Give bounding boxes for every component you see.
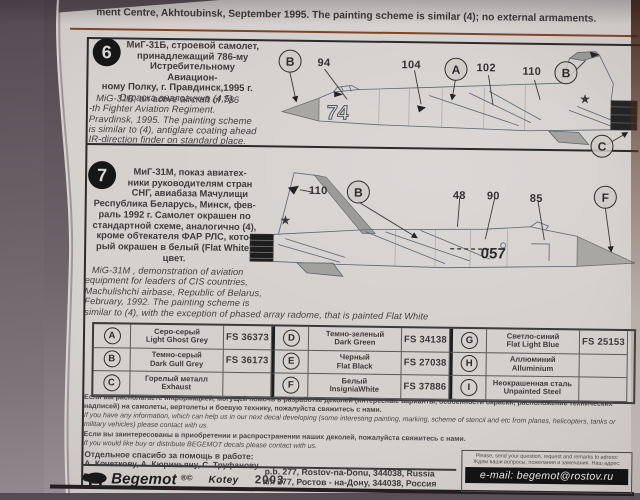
thin-brown-rule — [70, 28, 638, 37]
table-cell-fs — [579, 354, 627, 378]
table-cell-name: ЧерныйFlat Black — [309, 350, 402, 375]
footer-brand-name: Begemot — [111, 470, 177, 488]
table-cell-fs — [579, 377, 627, 401]
trademark-copyright-marks: ®© — [181, 473, 193, 482]
contact-note-ru: Ждем ваши вопросы, пожелания и замечания… — [465, 459, 628, 467]
mig31m-profile-drawing: 057 ★ — [244, 166, 638, 306]
table-cell-letter: G — [450, 329, 487, 353]
table-cell-name: Неокрашенная стальUnpainted Steel — [486, 376, 579, 401]
table-cell-letter: F — [271, 373, 308, 397]
table-cell-letter: B — [94, 348, 131, 372]
table-cell-letter: H — [450, 352, 487, 376]
callout-circle-a: A — [444, 58, 467, 81]
table-cell-fs: FS 27038 — [402, 352, 450, 376]
callout-label-110: 110 — [309, 185, 328, 197]
callout-label-94: 94 — [318, 57, 331, 69]
table-cell-name: Серо-серыйLight Ghost Grey — [131, 325, 224, 350]
table-cell-name: Темно-зеленыйDark Green — [309, 327, 402, 352]
section-6-text-en: MiG-31B, an active aircraft of 786 -th F… — [89, 93, 295, 147]
callout-label-48: 48 — [453, 190, 466, 202]
callout-label-104: 104 — [401, 59, 420, 71]
table-cell-fs: FS 36173 — [224, 349, 272, 373]
table-cell-name: Темно-серыйDark Gull Grey — [131, 348, 224, 373]
board-number-74: 74 — [325, 102, 350, 124]
table-cell-fs: FS 36373 — [224, 326, 272, 350]
table-cell-name: Светло-синийFlat Light Blue — [487, 329, 580, 354]
callout-label-85: 85 — [530, 193, 543, 205]
table-cell-letter: E — [272, 350, 309, 374]
footer-kotey-signature: Kotey — [208, 474, 238, 485]
callout-label-90: 90 — [487, 190, 500, 202]
table-cell-letter: A — [94, 324, 131, 348]
begemot-hippo-logo-icon — [82, 470, 108, 486]
email-bar: e-mail: begemot@rostov.ru — [465, 467, 628, 485]
sheet-content: ment Centre, Akhtoubinsk, September 1995… — [0, 0, 640, 500]
table-cell-letter: D — [272, 326, 309, 350]
tail-star-icon: ★ — [279, 212, 291, 227]
table-cell-fs: FS 25153 — [580, 330, 628, 354]
table-cell-name: Горелый металлExhaust — [130, 372, 223, 397]
table-cell-fs: FS 37886 — [401, 375, 449, 399]
table-cell-letter: C — [93, 371, 130, 395]
table-cell-letter: I — [449, 376, 486, 400]
footer-contact-box: Please, send your question, request and … — [461, 450, 633, 494]
color-table: A Серо-серыйLight Ghost Grey FS 36373 D … — [91, 322, 636, 404]
photographed-instruction-sheet: { "top_caption": "ment Centre, Akhtoubin… — [0, 0, 640, 493]
table-cell-name: АллюминийAlluminium — [487, 353, 580, 378]
table-cell-name: БелыйInsigniaWhite — [308, 374, 401, 399]
callout-label-110: 110 — [522, 66, 541, 78]
board-number-057: 057 — [480, 245, 506, 262]
tail-star-icon: ★ — [579, 91, 591, 106]
photo-right-edge-shadow — [631, 0, 640, 493]
table-cell-fs — [223, 373, 271, 397]
callout-circle-b-left: B — [278, 49, 301, 72]
callout-circle-b-right: B — [554, 61, 577, 84]
top-caption: ment Centre, Akhtoubinsk, September 1995… — [96, 7, 616, 25]
footer-address: p.b. 277, Rostov-na-Donu, 344038, Russia… — [262, 467, 437, 488]
table-cell-fs: FS 34138 — [402, 328, 450, 352]
callout-label-102: 102 — [476, 62, 495, 74]
section-7-text-ru: МиГ-31М, показ авиатех- ники руководител… — [85, 166, 264, 265]
